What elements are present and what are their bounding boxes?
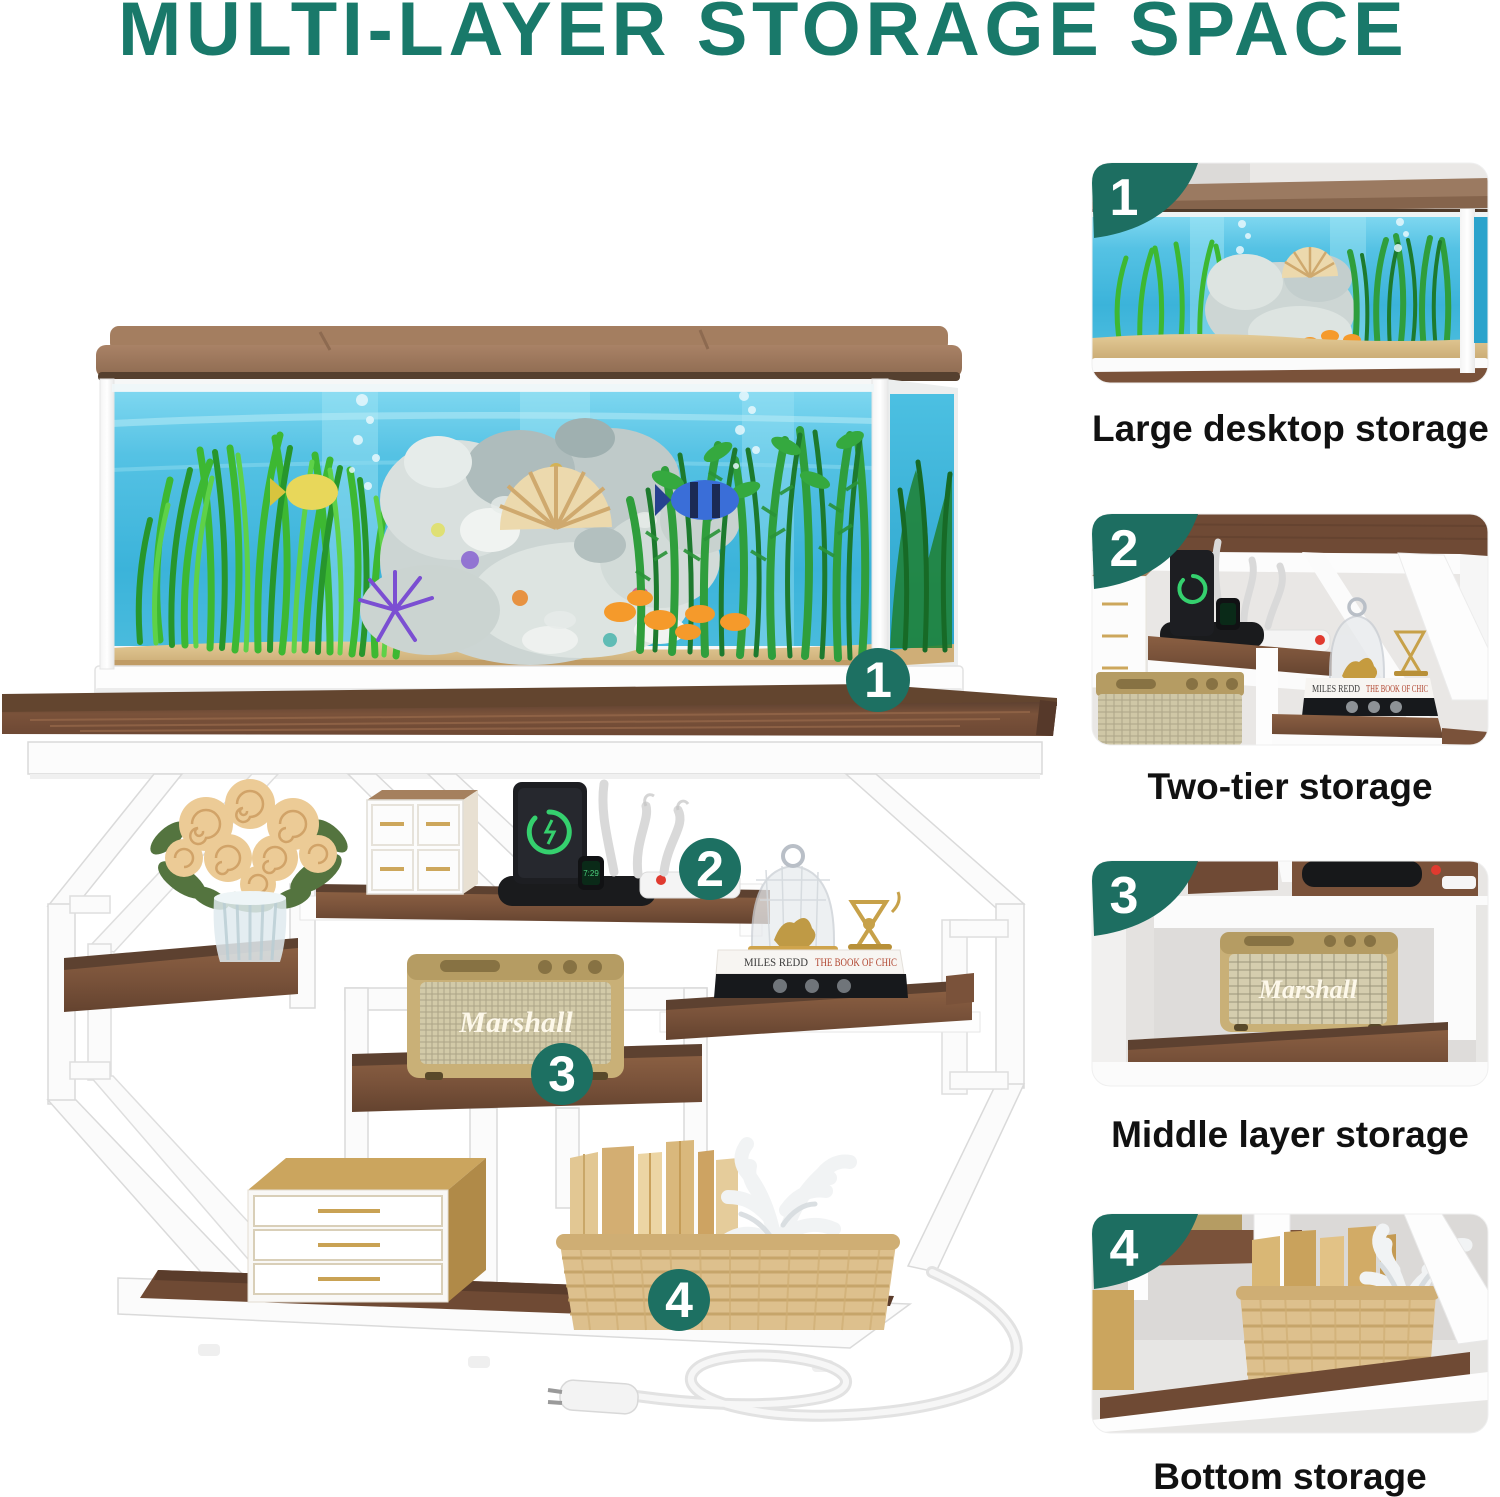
svg-text:Marshall: Marshall [1258, 975, 1358, 1004]
svg-text:THE BOOK OF CHIC: THE BOOK OF CHIC [815, 955, 897, 969]
svg-text:Marshall: Marshall [458, 1006, 573, 1039]
svg-text:3: 3 [1110, 867, 1139, 925]
svg-text:THE BOOK OF CHIC: THE BOOK OF CHIC [1366, 684, 1428, 695]
svg-text:4: 4 [1110, 1220, 1139, 1278]
svg-text:1: 1 [864, 652, 892, 708]
svg-text:1: 1 [1110, 169, 1139, 227]
svg-text:7:29: 7:29 [583, 869, 599, 878]
svg-text:MILES REDD: MILES REDD [1312, 684, 1360, 695]
svg-text:MILES REDD: MILES REDD [744, 955, 808, 969]
svg-text:3: 3 [548, 1046, 576, 1102]
svg-text:2: 2 [696, 841, 724, 897]
svg-text:2: 2 [1110, 520, 1139, 578]
svg-text:4: 4 [665, 1272, 693, 1328]
